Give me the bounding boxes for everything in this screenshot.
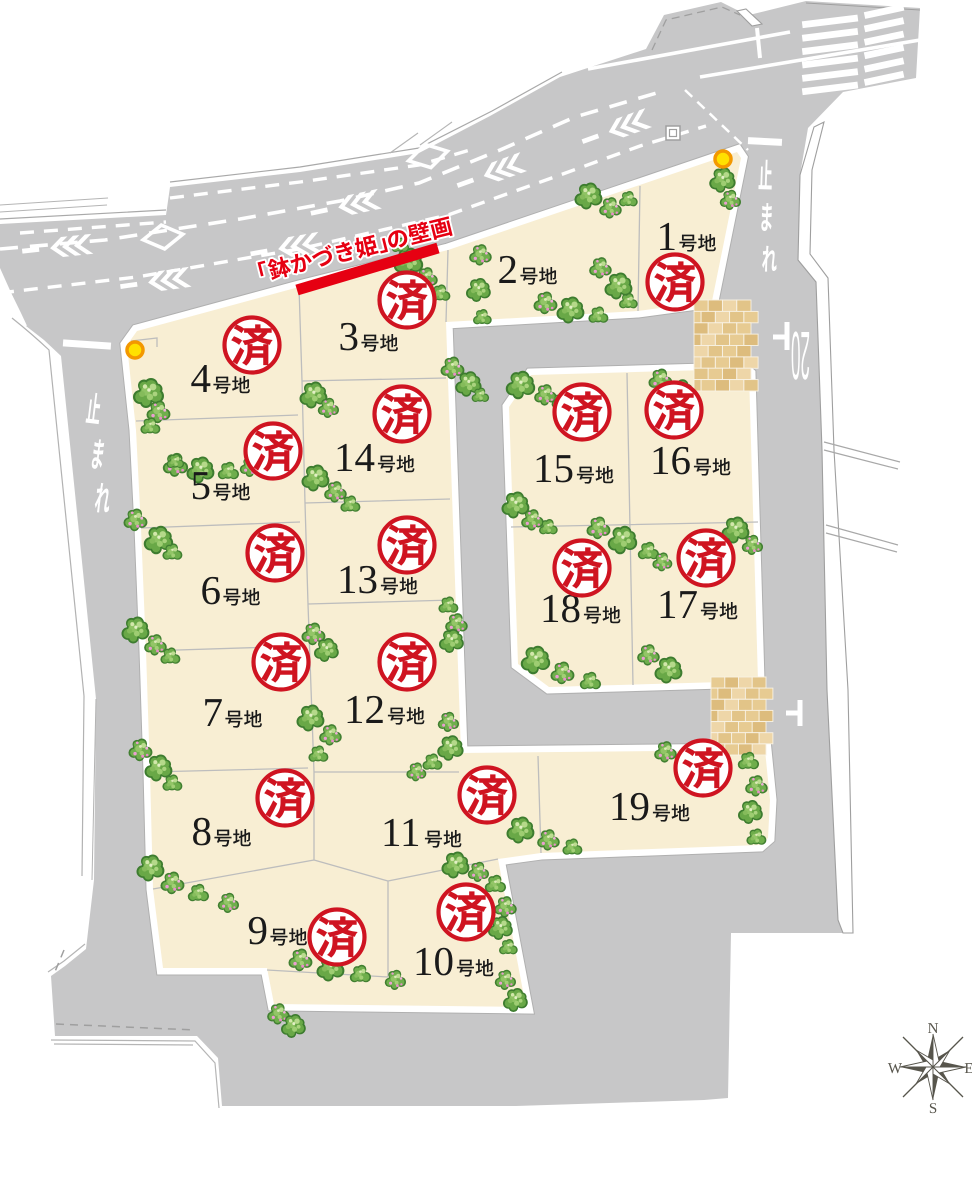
- svg-text:16: 16: [650, 437, 691, 483]
- svg-text:14: 14: [334, 434, 375, 480]
- svg-text:17: 17: [657, 581, 698, 627]
- svg-text:4: 4: [191, 355, 212, 401]
- svg-text:N: N: [928, 1021, 939, 1037]
- svg-text:S: S: [929, 1101, 937, 1117]
- svg-text:13: 13: [337, 556, 378, 602]
- svg-text:2: 2: [498, 246, 519, 292]
- svg-text:7: 7: [203, 689, 224, 735]
- svg-text:1: 1: [657, 213, 678, 259]
- svg-text:3: 3: [339, 313, 360, 359]
- svg-text:8: 8: [192, 808, 213, 854]
- svg-text:5: 5: [191, 462, 212, 508]
- svg-text:W: W: [888, 1061, 903, 1077]
- svg-text:12: 12: [344, 686, 385, 732]
- svg-text:19: 19: [609, 783, 650, 829]
- svg-text:11: 11: [381, 809, 420, 855]
- svg-text:15: 15: [533, 445, 574, 491]
- svg-text:E: E: [964, 1061, 972, 1077]
- svg-text:9: 9: [248, 907, 269, 953]
- svg-text:6: 6: [201, 567, 222, 613]
- svg-text:10: 10: [413, 938, 454, 984]
